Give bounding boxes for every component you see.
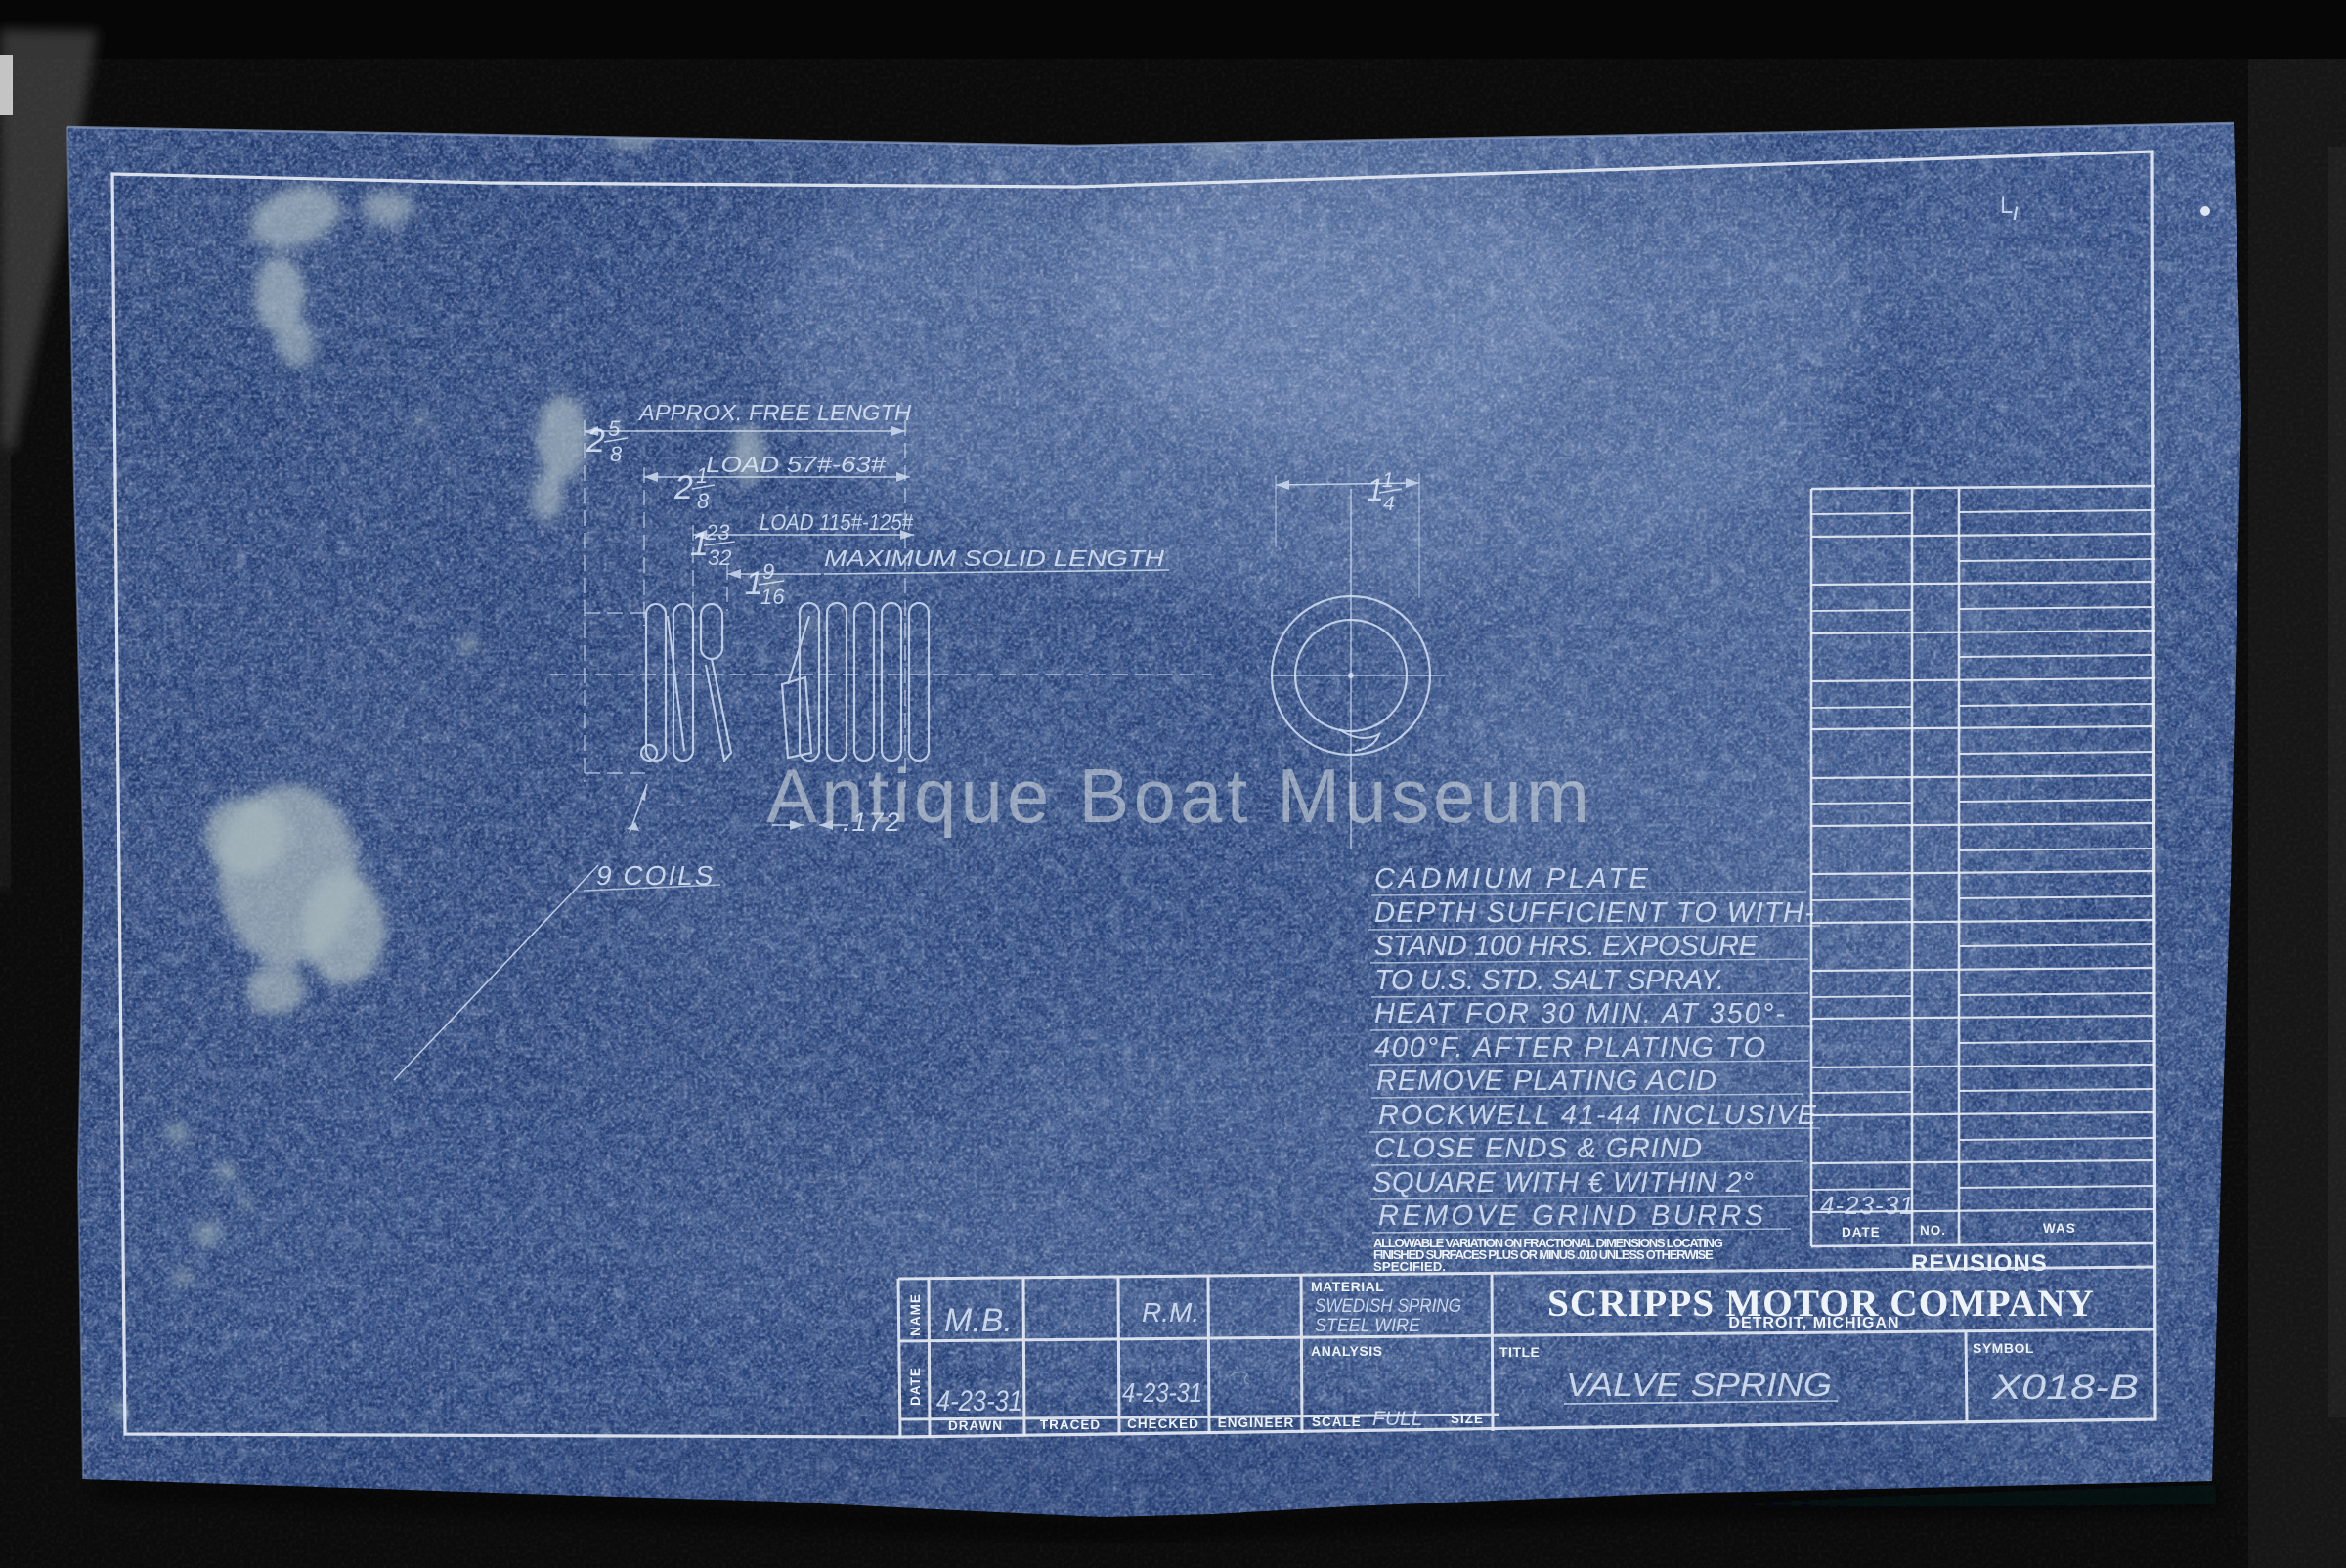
svg-text:23: 23 xyxy=(705,520,730,544)
svg-text:SYMBOL: SYMBOL xyxy=(1973,1340,2034,1356)
svg-text:FULL: FULL xyxy=(1372,1408,1422,1430)
svg-text:4: 4 xyxy=(1383,493,1395,515)
svg-text:1: 1 xyxy=(1382,469,1394,492)
svg-text:SCALE: SCALE xyxy=(1312,1415,1362,1429)
svg-text:SIZE: SIZE xyxy=(1451,1412,1484,1426)
svg-text:M.B.: M.B. xyxy=(944,1302,1013,1339)
svg-text:SQUARE WITH € WITHIN 2°: SQUARE WITH € WITHIN 2° xyxy=(1372,1167,1754,1198)
svg-text:VALVE SPRING: VALVE SPRING xyxy=(1566,1367,1832,1403)
svg-text:TO U.S. STD. SALT SPRAY.: TO U.S. STD. SALT SPRAY. xyxy=(1374,965,1724,996)
svg-text:└ı: └ı xyxy=(1994,196,2020,226)
svg-text:2: 2 xyxy=(586,422,605,459)
svg-text:X018-B: X018-B xyxy=(1991,1369,2139,1407)
svg-text:WAS: WAS xyxy=(2043,1221,2076,1236)
svg-text:ANALYSIS: ANALYSIS xyxy=(1311,1343,1383,1359)
svg-text:8: 8 xyxy=(697,489,710,513)
svg-text:NAME: NAME xyxy=(908,1293,923,1336)
svg-text:ENGINEER: ENGINEER xyxy=(1218,1416,1295,1430)
svg-text:DATE: DATE xyxy=(908,1367,923,1406)
svg-text:HEAT FOR 30 MIN. AT 350°-: HEAT FOR 30 MIN. AT 350°- xyxy=(1374,998,1785,1029)
svg-text:8: 8 xyxy=(610,442,623,466)
svg-text:4-23-31: 4-23-31 xyxy=(1122,1377,1202,1408)
svg-text:NO.: NO. xyxy=(1920,1223,1946,1238)
svg-text:9: 9 xyxy=(762,559,774,584)
svg-text:DRAWN: DRAWN xyxy=(948,1418,1003,1433)
svg-text:MAXIMUM SOLID LENGTH: MAXIMUM SOLID LENGTH xyxy=(824,545,1164,571)
svg-text:STAND 100 HRS. EXPOSURE: STAND 100 HRS. EXPOSURE xyxy=(1374,931,1759,962)
svg-text:MATERIAL: MATERIAL xyxy=(1311,1279,1384,1294)
svg-text:R.M.: R.M. xyxy=(1142,1297,1199,1328)
svg-text:2: 2 xyxy=(673,469,693,506)
svg-text:CHECKED: CHECKED xyxy=(1127,1416,1199,1431)
svg-text:TITLE: TITLE xyxy=(1499,1344,1540,1360)
svg-text:5: 5 xyxy=(608,416,621,441)
svg-text:STEEL WIRE: STEEL WIRE xyxy=(1315,1316,1420,1336)
svg-text:CADMIUM PLATE: CADMIUM PLATE xyxy=(1374,863,1649,894)
svg-text:REMOVE GRIND BURRS: REMOVE GRIND BURRS xyxy=(1378,1200,1764,1232)
svg-text:16: 16 xyxy=(760,585,785,609)
svg-text:TRACED: TRACED xyxy=(1040,1417,1101,1432)
svg-text:4-23-31: 4-23-31 xyxy=(936,1385,1022,1417)
svg-text:CLOSE ENDS & GRIND: CLOSE ENDS & GRIND xyxy=(1374,1133,1702,1164)
svg-text:REMOVE PLATING ACID: REMOVE PLATING ACID xyxy=(1376,1066,1716,1097)
svg-text:ROCKWELL 41-44 INCLUSIVE: ROCKWELL 41-44 INCLUSIVE xyxy=(1378,1100,1817,1131)
svg-text:32: 32 xyxy=(708,545,731,570)
svg-text:SWEDISH SPRING: SWEDISH SPRING xyxy=(1315,1296,1461,1317)
svg-text:400°F. AFTER PLATING TO: 400°F. AFTER PLATING TO xyxy=(1374,1032,1765,1064)
svg-text:REVISIONS: REVISIONS xyxy=(1911,1250,2048,1277)
svg-text:DEPTH SUFFICIENT TO WITH-: DEPTH SUFFICIENT TO WITH- xyxy=(1374,897,1814,929)
svg-text:SPECIFIED.: SPECIFIED. xyxy=(1373,1259,1446,1274)
svg-text:DATE: DATE xyxy=(1842,1225,1881,1240)
svg-text:APPROX. FREE LENGTH: APPROX. FREE LENGTH xyxy=(637,400,911,425)
svg-text:LOAD 115#-125#: LOAD 115#-125# xyxy=(760,509,914,535)
svg-text:4-23-31: 4-23-31 xyxy=(1820,1191,1915,1220)
svg-text:LOAD 57#-63#: LOAD 57#-63# xyxy=(706,452,887,477)
svg-text:DETROIT, MICHIGAN: DETROIT, MICHIGAN xyxy=(1728,1315,1899,1331)
